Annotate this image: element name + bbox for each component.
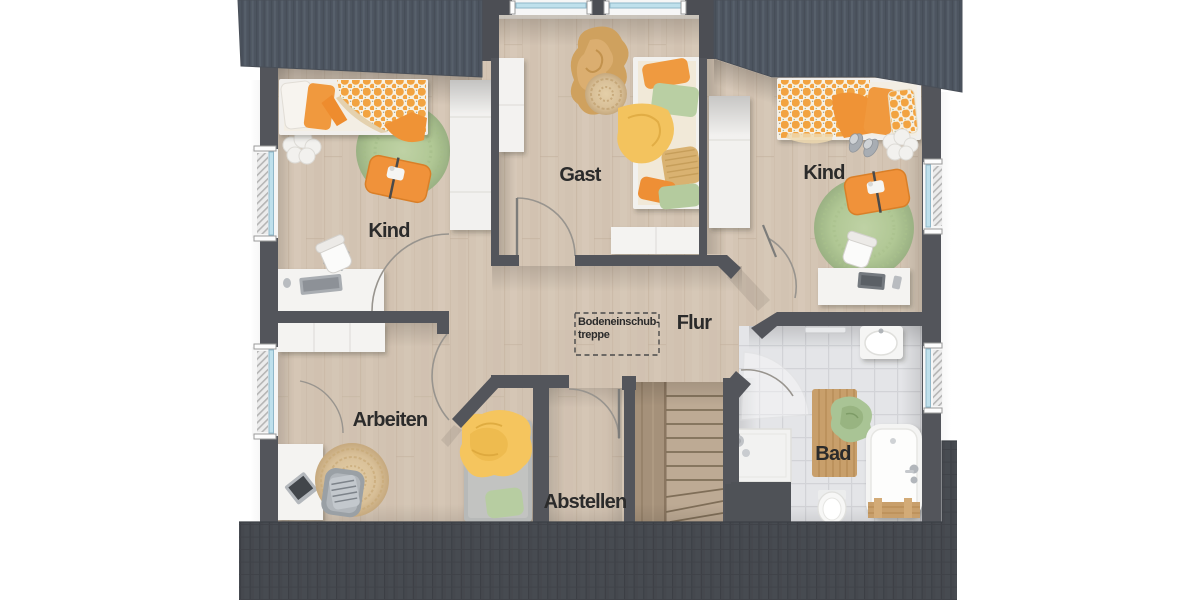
svg-text:Bodeneinschub-: Bodeneinschub- bbox=[578, 316, 660, 328]
svg-text:treppe: treppe bbox=[578, 329, 610, 341]
svg-text:Abstellen: Abstellen bbox=[544, 491, 627, 513]
svg-text:Kind: Kind bbox=[803, 162, 844, 184]
svg-text:Gast: Gast bbox=[559, 164, 601, 186]
svg-text:Kind: Kind bbox=[368, 220, 409, 242]
svg-text:Flur: Flur bbox=[677, 312, 713, 334]
svg-text:Bad: Bad bbox=[815, 443, 850, 465]
svg-text:Arbeiten: Arbeiten bbox=[353, 409, 428, 431]
